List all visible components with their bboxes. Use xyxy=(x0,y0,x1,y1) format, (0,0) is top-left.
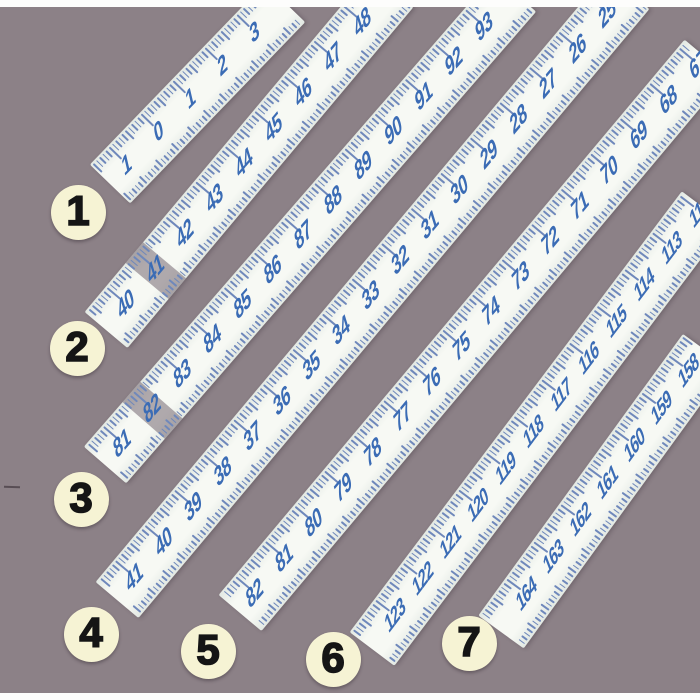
tape-number: 122 xyxy=(410,556,436,604)
tick-mark xyxy=(324,241,330,247)
tick-mark xyxy=(525,142,531,148)
tick-mark xyxy=(397,454,403,460)
tick-mark xyxy=(280,151,286,157)
tick-mark xyxy=(505,32,511,38)
tape-number: 47 xyxy=(321,36,344,80)
tick-mark xyxy=(339,80,345,86)
tick-mark xyxy=(599,377,605,382)
tick-mark xyxy=(283,147,289,153)
tape-number: 119 xyxy=(493,446,519,493)
tick-mark xyxy=(586,396,592,401)
tick-mark xyxy=(285,286,291,292)
tick-mark xyxy=(498,334,504,340)
tick-mark xyxy=(616,355,622,360)
callout-circle-6: 6 xyxy=(306,632,361,687)
tick-mark xyxy=(406,635,412,640)
tick-mark xyxy=(638,326,644,331)
tick-mark xyxy=(199,119,205,125)
tick-mark xyxy=(658,300,664,305)
tape-number: 69 xyxy=(628,114,651,158)
tick-mark xyxy=(539,285,545,291)
tick-mark xyxy=(203,526,209,532)
tick-mark xyxy=(508,29,514,35)
tape-number: 80 xyxy=(302,501,325,545)
tick-mark xyxy=(371,486,377,492)
tape-number: 118 xyxy=(521,409,547,456)
tick-mark xyxy=(542,281,548,287)
tape-number: 160 xyxy=(622,422,648,470)
tape-number: 114 xyxy=(632,263,658,310)
tick-mark xyxy=(616,193,622,199)
tick-mark xyxy=(366,192,372,198)
tick-mark xyxy=(533,292,539,298)
tick-mark xyxy=(605,47,611,53)
tick-mark xyxy=(351,66,357,72)
tick-mark xyxy=(259,56,265,62)
tick-mark xyxy=(250,66,256,72)
tick-mark xyxy=(533,466,539,471)
tick-mark xyxy=(427,419,433,425)
tick-mark xyxy=(368,489,374,495)
tick-mark xyxy=(526,8,532,14)
tick-mark xyxy=(282,33,288,39)
callout-circle-7: 7 xyxy=(442,616,497,671)
tick-mark xyxy=(486,348,492,354)
tick-mark xyxy=(183,135,189,141)
tick-mark xyxy=(596,58,602,64)
tick-mark xyxy=(202,115,208,121)
tick-mark xyxy=(303,567,309,573)
tick-mark xyxy=(599,54,605,60)
tick-mark xyxy=(394,458,400,464)
tick-mark xyxy=(566,422,572,427)
tick-mark xyxy=(146,446,152,452)
tick-mark xyxy=(572,86,578,92)
tick-mark xyxy=(383,311,389,317)
tick-mark xyxy=(291,279,297,285)
tick-mark xyxy=(448,98,454,104)
tick-mark xyxy=(275,39,281,45)
tick-mark xyxy=(330,234,336,240)
tick-mark xyxy=(413,276,419,282)
tick-mark xyxy=(578,557,585,562)
tick-mark xyxy=(191,393,197,399)
tape-number: 81 xyxy=(273,537,296,581)
tick-mark xyxy=(323,542,329,548)
tick-mark xyxy=(454,227,460,233)
tick-mark xyxy=(683,267,689,272)
tick-mark xyxy=(232,491,238,497)
tick-mark xyxy=(342,77,348,83)
tick-mark xyxy=(621,498,628,503)
tick-mark xyxy=(389,304,395,310)
tick-mark xyxy=(311,556,317,562)
tick-mark xyxy=(630,337,636,342)
tick-mark xyxy=(144,313,150,319)
tick-mark xyxy=(486,528,492,533)
tick-mark xyxy=(572,414,578,419)
tick-mark xyxy=(398,294,404,300)
tick-mark xyxy=(324,382,330,388)
tick-mark xyxy=(179,407,185,413)
tick-mark xyxy=(478,198,484,204)
tick-mark xyxy=(208,109,214,115)
tick-mark xyxy=(431,602,437,607)
tick-mark xyxy=(403,150,409,156)
tick-mark xyxy=(528,473,534,478)
tick-mark xyxy=(635,330,641,335)
tick-mark xyxy=(301,126,307,132)
tick-mark xyxy=(427,123,433,129)
tape-number: 116 xyxy=(576,336,602,383)
tick-mark xyxy=(262,456,268,462)
tick-mark xyxy=(628,179,634,185)
tick-mark xyxy=(607,204,613,210)
tick-mark xyxy=(218,225,224,231)
tick-mark xyxy=(215,102,221,108)
tick-mark xyxy=(298,130,304,136)
tick-mark xyxy=(320,546,326,552)
tick-mark xyxy=(195,122,201,128)
tick-mark xyxy=(216,366,222,372)
tape-number: 34 xyxy=(330,309,353,353)
tick-mark xyxy=(611,363,617,368)
tick-mark xyxy=(197,250,203,256)
callout-circle-4: 4 xyxy=(64,607,119,662)
tick-mark xyxy=(604,207,610,213)
tick-mark xyxy=(451,95,457,101)
tick-mark xyxy=(450,391,456,397)
tick-mark xyxy=(561,100,567,106)
tick-mark xyxy=(509,320,515,326)
tick-mark xyxy=(558,433,564,438)
tick-mark xyxy=(575,411,581,416)
tick-mark xyxy=(357,59,363,65)
tick-mark xyxy=(567,572,574,577)
tick-mark xyxy=(624,344,630,349)
tape-number: 74 xyxy=(480,290,503,334)
tick-mark xyxy=(294,275,300,281)
tick-mark xyxy=(415,433,421,439)
tick-mark xyxy=(559,583,566,588)
tick-mark xyxy=(128,466,134,472)
tick-mark xyxy=(666,133,672,139)
tick-mark xyxy=(442,587,448,592)
tick-mark xyxy=(316,109,322,115)
tick-mark xyxy=(677,275,683,280)
tape-number: 28 xyxy=(507,98,530,142)
tick-mark xyxy=(659,446,666,451)
tick-mark xyxy=(409,440,415,446)
tape-number: 27 xyxy=(537,62,560,106)
tick-mark xyxy=(483,352,489,358)
tick-mark xyxy=(321,385,327,391)
tape-number: 82 xyxy=(243,572,266,616)
tick-mark xyxy=(250,470,256,476)
tick-mark xyxy=(511,495,517,500)
tick-mark xyxy=(294,19,300,25)
tick-mark xyxy=(379,475,385,481)
tick-mark xyxy=(525,477,531,482)
tick-mark xyxy=(619,190,625,196)
tick-mark xyxy=(554,591,561,596)
tick-mark xyxy=(212,232,218,238)
tick-mark xyxy=(622,348,628,353)
tick-mark xyxy=(227,89,233,95)
tick-mark xyxy=(588,392,594,397)
tick-mark xyxy=(185,400,191,406)
tape-number: 163 xyxy=(541,534,567,582)
tape-number: 164 xyxy=(514,571,540,619)
tick-mark xyxy=(222,359,228,365)
tick-mark xyxy=(557,264,563,270)
tape-number: 3 xyxy=(247,15,261,51)
tick-mark xyxy=(398,10,404,16)
callout-circle-3: 3 xyxy=(54,472,109,527)
tick-mark xyxy=(517,19,523,25)
tick-mark xyxy=(357,203,363,209)
tick-mark xyxy=(345,357,351,363)
tick-mark xyxy=(663,137,669,143)
tick-mark xyxy=(657,144,663,150)
tick-mark xyxy=(356,503,362,509)
tick-mark xyxy=(594,385,600,390)
tick-mark xyxy=(422,613,428,618)
tick-mark xyxy=(518,639,525,644)
tick-mark xyxy=(543,121,549,127)
tick-mark xyxy=(484,191,490,197)
tick-mark xyxy=(160,158,166,164)
tick-mark xyxy=(592,222,598,228)
tick-mark xyxy=(289,424,295,430)
tick-mark xyxy=(546,602,553,607)
tick-mark xyxy=(277,154,283,160)
tick-mark xyxy=(481,60,487,66)
tick-mark xyxy=(336,368,342,374)
tick-mark xyxy=(206,239,212,245)
tick-mark xyxy=(240,338,246,344)
tick-mark xyxy=(327,237,333,243)
tick-mark xyxy=(616,505,623,510)
tick-mark xyxy=(643,468,650,473)
tick-mark xyxy=(408,631,414,636)
tape-number: 35 xyxy=(300,344,323,388)
tick-mark xyxy=(167,568,173,574)
tick-mark xyxy=(200,383,206,389)
tick-mark xyxy=(500,510,506,515)
tick-mark xyxy=(155,435,161,441)
tick-mark xyxy=(203,243,209,249)
tick-mark xyxy=(305,563,311,569)
tick-mark xyxy=(326,539,332,545)
tick-mark xyxy=(430,119,436,125)
tick-mark xyxy=(291,23,297,29)
tick-mark xyxy=(537,613,544,618)
tick-mark xyxy=(173,561,179,567)
tick-mark xyxy=(185,547,191,553)
tick-mark xyxy=(528,139,534,145)
tick-mark xyxy=(569,89,575,95)
tick-mark xyxy=(129,331,135,337)
tick-mark xyxy=(523,12,529,18)
tick-mark xyxy=(144,175,150,181)
tick-mark xyxy=(219,362,225,368)
tick-mark xyxy=(380,315,386,321)
tick-mark xyxy=(551,594,558,599)
tick-mark xyxy=(188,397,194,403)
tick-mark xyxy=(617,33,623,39)
tick-mark xyxy=(365,493,371,499)
tick-mark xyxy=(497,513,503,518)
tick-mark xyxy=(602,50,608,56)
tick-mark xyxy=(602,374,608,379)
tape-number: 0 xyxy=(152,114,166,150)
tick-mark xyxy=(211,105,217,111)
tick-mark xyxy=(583,232,589,238)
tick-mark xyxy=(354,346,360,352)
tick-mark xyxy=(511,25,517,31)
tick-mark xyxy=(249,328,255,334)
tape-number: 84 xyxy=(201,318,224,362)
scan-border-top xyxy=(0,0,700,7)
tick-mark xyxy=(496,43,502,49)
tick-mark xyxy=(487,188,493,194)
tape-number: 36 xyxy=(271,379,294,423)
tick-mark xyxy=(231,85,237,91)
tick-mark xyxy=(392,301,398,307)
tick-mark xyxy=(309,258,315,264)
tick-mark xyxy=(562,580,569,585)
tick-mark xyxy=(261,314,267,320)
tick-mark xyxy=(256,463,262,469)
tape-number: 30 xyxy=(448,168,471,212)
tick-mark xyxy=(313,112,319,118)
tick-mark xyxy=(309,399,315,405)
tick-mark xyxy=(530,296,536,302)
tick-mark xyxy=(397,157,403,163)
tape-number: 73 xyxy=(509,255,532,299)
tick-mark xyxy=(368,329,374,335)
tick-mark xyxy=(514,491,520,496)
tick-mark xyxy=(640,472,647,477)
tick-mark xyxy=(651,151,657,157)
tick-mark xyxy=(475,67,481,73)
tick-mark xyxy=(502,36,508,42)
tick-mark xyxy=(430,415,436,421)
tick-mark xyxy=(234,82,240,88)
callout-circle-2: 2 xyxy=(50,321,105,376)
tape-number: 72 xyxy=(539,219,562,263)
tick-mark xyxy=(135,324,141,330)
tick-mark xyxy=(680,271,686,276)
tick-mark xyxy=(333,371,339,377)
tape-number: 44 xyxy=(233,142,256,186)
tick-mark xyxy=(191,257,197,263)
tick-mark xyxy=(215,512,221,518)
tick-mark xyxy=(154,165,160,171)
tick-mark xyxy=(563,257,569,263)
tick-mark xyxy=(414,624,420,629)
tape-number: 112 xyxy=(687,189,700,236)
tick-mark xyxy=(693,102,699,108)
tick-mark xyxy=(144,597,150,603)
tape-number: 43 xyxy=(203,177,226,221)
tick-mark xyxy=(404,287,410,293)
tick-mark xyxy=(644,319,650,324)
tick-mark xyxy=(359,339,365,345)
tick-mark xyxy=(288,26,294,32)
tick-mark xyxy=(406,147,412,153)
tick-mark xyxy=(282,289,288,295)
tick-mark xyxy=(170,148,176,154)
tick-mark xyxy=(134,459,140,465)
tick-mark xyxy=(262,172,268,178)
tape-number: 90 xyxy=(382,109,405,153)
tape-number: 31 xyxy=(419,203,442,247)
tick-mark xyxy=(400,451,406,457)
tick-mark xyxy=(513,156,519,162)
tape-number: 75 xyxy=(450,325,473,369)
tick-mark xyxy=(575,561,582,566)
tick-mark xyxy=(410,280,416,286)
tick-mark xyxy=(427,258,433,264)
tick-mark xyxy=(622,186,628,192)
tick-mark xyxy=(584,72,590,78)
tick-mark xyxy=(354,206,360,212)
tick-mark xyxy=(291,581,297,587)
tick-mark xyxy=(218,509,224,515)
tick-mark xyxy=(487,53,493,59)
tick-mark xyxy=(338,525,344,531)
tick-mark xyxy=(590,65,596,71)
tape-number: 120 xyxy=(465,483,491,531)
tick-mark xyxy=(246,331,252,337)
tick-mark xyxy=(369,45,375,51)
tick-mark xyxy=(472,71,478,77)
tick-mark xyxy=(252,324,258,330)
tick-mark xyxy=(546,117,552,123)
tick-mark xyxy=(151,168,157,174)
tick-mark xyxy=(265,452,271,458)
tick-mark xyxy=(548,274,554,280)
tick-mark xyxy=(532,620,539,625)
tick-mark xyxy=(262,52,268,58)
tick-mark xyxy=(279,595,285,601)
tick-mark xyxy=(132,327,138,333)
tick-mark xyxy=(150,306,156,312)
tick-mark xyxy=(436,408,442,414)
tick-mark xyxy=(552,440,558,445)
tick-mark xyxy=(387,24,393,30)
tick-mark xyxy=(539,458,545,463)
tick-mark xyxy=(300,410,306,416)
tick-mark xyxy=(660,141,666,147)
tick-mark xyxy=(280,435,286,441)
tick-mark xyxy=(191,540,197,546)
callout-number: 5 xyxy=(196,629,219,671)
tick-mark xyxy=(279,293,285,299)
tick-mark xyxy=(648,155,654,161)
tick-mark xyxy=(421,130,427,136)
tick-mark xyxy=(524,632,531,637)
tick-mark xyxy=(369,189,375,195)
tick-mark xyxy=(321,102,327,108)
tick-mark xyxy=(436,594,442,599)
tick-mark xyxy=(689,405,696,410)
tick-mark xyxy=(353,630,361,636)
tape-number: 46 xyxy=(292,71,315,115)
callout-number: 2 xyxy=(65,326,88,368)
